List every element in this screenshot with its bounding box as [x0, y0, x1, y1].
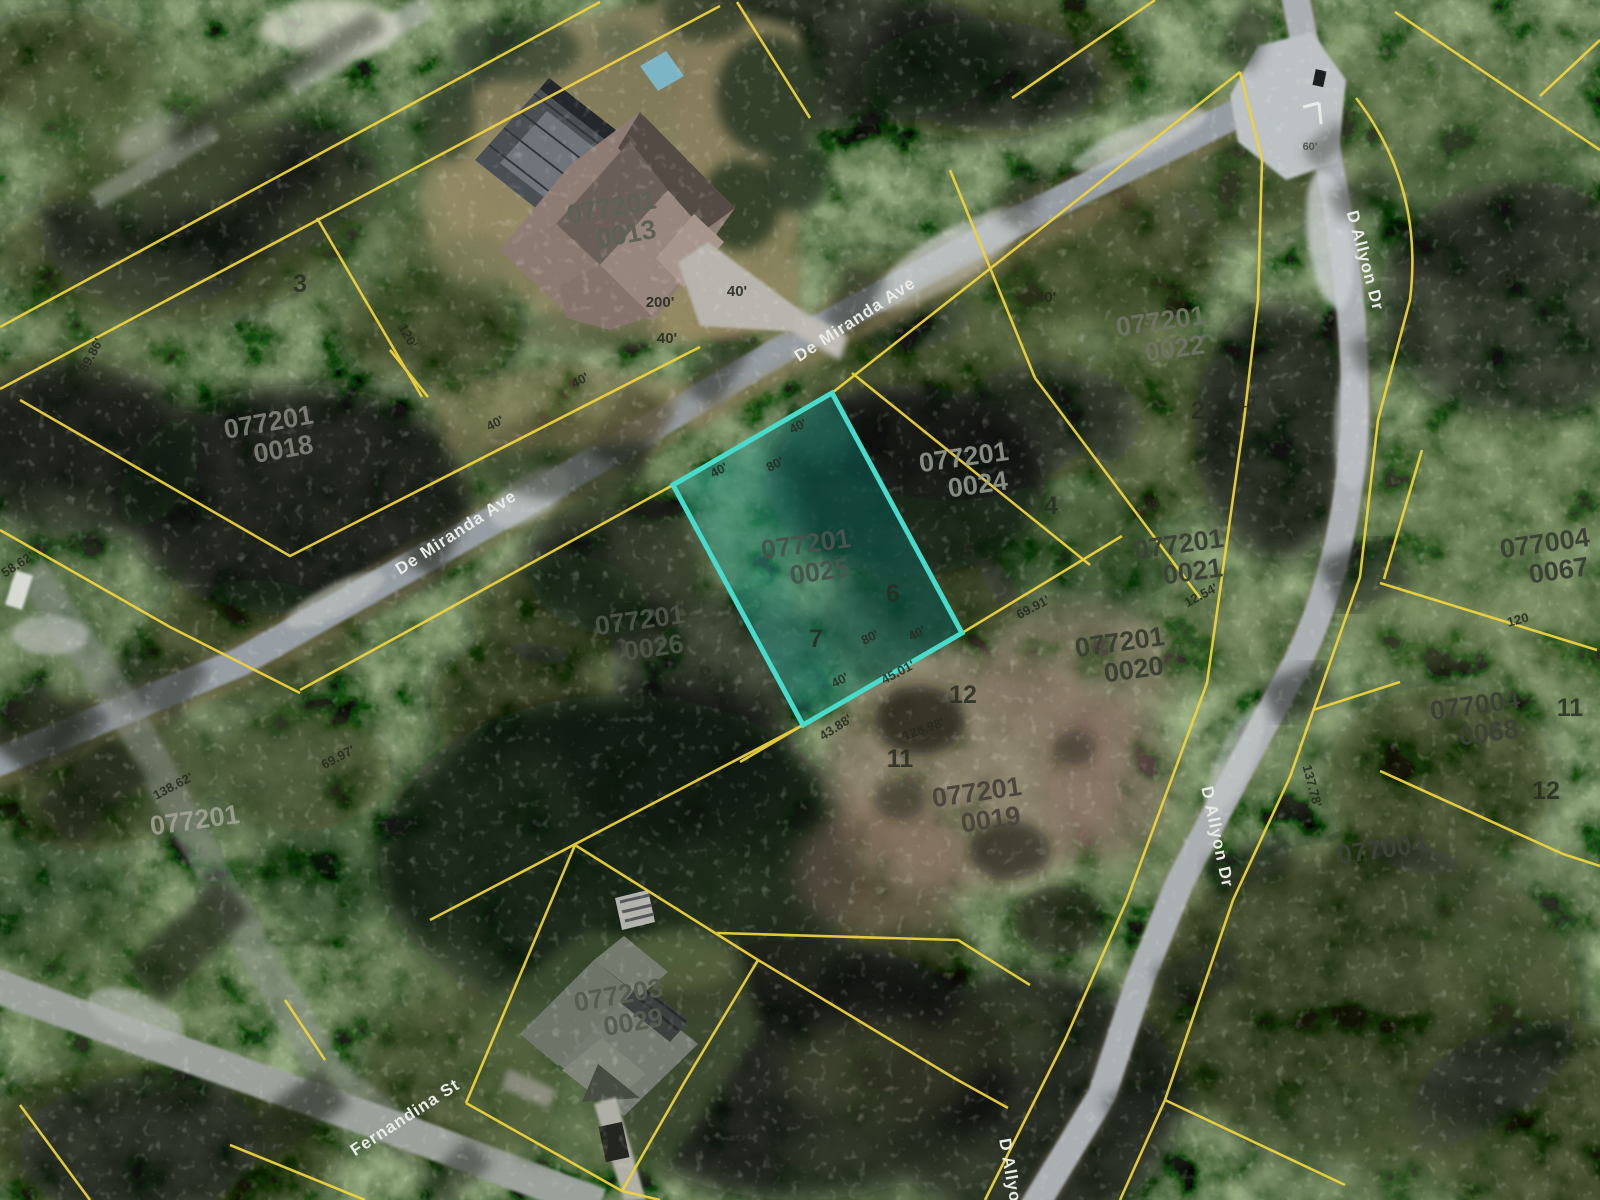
svg-text:60': 60' [1303, 141, 1318, 153]
svg-text:11: 11 [1557, 694, 1584, 722]
svg-text:4: 4 [1044, 492, 1058, 520]
svg-text:200': 200' [646, 294, 675, 311]
svg-text:2: 2 [1191, 397, 1205, 425]
svg-text:5: 5 [962, 538, 976, 566]
svg-text:12: 12 [949, 681, 977, 709]
svg-text:40': 40' [727, 283, 747, 300]
svg-text:12: 12 [1532, 777, 1560, 805]
svg-text:6: 6 [1501, 266, 1515, 294]
svg-text:11: 11 [887, 745, 914, 773]
svg-text:9: 9 [631, 687, 645, 715]
svg-text:40': 40' [1036, 289, 1056, 306]
svg-text:7: 7 [809, 625, 823, 653]
svg-text:3: 3 [293, 270, 307, 298]
svg-text:6: 6 [886, 580, 900, 608]
svg-text:8: 8 [698, 662, 712, 690]
svg-text:40': 40' [657, 330, 677, 347]
